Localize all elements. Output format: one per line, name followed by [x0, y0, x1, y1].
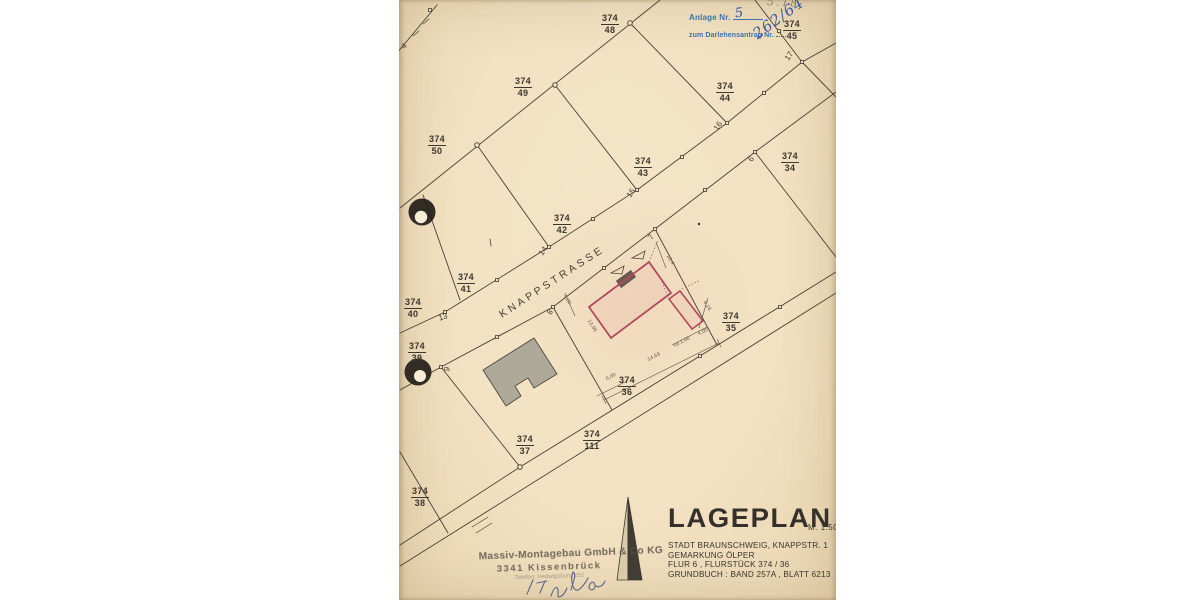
parcel-number: 374 [553, 214, 571, 225]
title-line-grundbuch: GRUNDBUCH : BAND 257A , BLATT 6213 [668, 570, 836, 580]
parcel-subnumber: 37 [516, 446, 534, 456]
parcel-number: 374 [428, 135, 446, 146]
parcel-subnumber: 43 [634, 168, 652, 178]
parcel-label-374-37: 37437 [516, 435, 534, 456]
parcel-number: 374 [516, 435, 534, 446]
anlage-label: Anlage Nr. [689, 13, 731, 22]
parcel-label-374-111: 374111 [583, 430, 601, 451]
parcel-number: 374 [716, 82, 734, 93]
parcel-subnumber: 41 [457, 284, 475, 294]
title-line-flur: FLUR 6 , FLURSTÜCK 374 / 36 [668, 560, 836, 570]
parcel-subnumber: 44 [716, 93, 734, 103]
parcel-number: 374 [514, 77, 532, 88]
stamp-rule [776, 29, 788, 37]
scanned-site-plan-page: KNAPPSTRASSE 374483744537449374443745037… [0, 0, 1200, 600]
parcel-label-374-36: 37436 [618, 376, 636, 397]
parcel-number: 374 [583, 430, 601, 441]
parcel-number: 374 [634, 157, 652, 168]
parcel-subnumber: 36 [618, 387, 636, 397]
parcel-subnumber: 42 [553, 225, 571, 235]
parcel-number: 374 [457, 273, 475, 284]
parcel-label-374-50: 37450 [428, 135, 446, 156]
parcel-label-374-34: 37434 [781, 152, 799, 173]
company-stamp: Massiv-Montagebau GmbH & Co KG 3341 Kiss… [479, 547, 620, 583]
title-line-gemarkung: GEMARKUNG ÖLPER [668, 551, 836, 561]
parcel-label-374-42: 37442 [553, 214, 571, 235]
parcel-label-374-41: 37441 [457, 273, 475, 294]
parcel-subnumber: 111 [583, 441, 601, 451]
parcel-label-374-38: 37438 [411, 487, 429, 508]
site-plan-scan: KNAPPSTRASSE 374483744537449374443745037… [399, 0, 836, 600]
pencil-note: 5.18 [767, 0, 800, 10]
parcel-label-374-48: 37448 [601, 14, 619, 35]
parcel-label-374-39: 37439 [408, 342, 426, 363]
parcel-subnumber: 50 [428, 146, 446, 156]
parcel-number: 374 [408, 342, 426, 353]
parcel-subnumber: 48 [601, 25, 619, 35]
parcel-label-374-49: 37449 [514, 77, 532, 98]
parcel-number: 374 [404, 298, 422, 309]
parcel-label-374-40: 37440 [404, 298, 422, 319]
parcel-label-374-44: 37444 [716, 82, 734, 103]
title-line-city: STADT BRAUNSCHWEIG, KNAPPSTR. 1 [668, 541, 836, 551]
parcel-subnumber: 40 [404, 309, 422, 319]
parcel-label-374-43: 37443 [634, 157, 652, 178]
parcel-number: 374 [722, 312, 740, 323]
parcel-subnumber: 49 [514, 88, 532, 98]
anlage-stamp: Anlage Nr. zum Darlehensantrag Nr. 5 262… [689, 11, 829, 39]
parcel-subnumber: 39 [408, 353, 426, 363]
title-block: LAGEPLAN M. 1:500 STADT BRAUNSCHWEIG, KN… [668, 503, 836, 579]
parcel-subnumber: 35 [722, 323, 740, 333]
existing-building [483, 338, 557, 406]
parcel-label-374-35: 37435 [722, 312, 740, 333]
parcel-subnumber: 34 [781, 163, 799, 173]
parcel-number: 374 [601, 14, 619, 25]
parcel-subnumber: 38 [411, 498, 429, 508]
parcel-number: 374 [781, 152, 799, 163]
new-building-outline [589, 262, 703, 338]
survey-circle-markers [475, 21, 633, 470]
north-arrow [617, 497, 642, 580]
parcel-number: 374 [411, 487, 429, 498]
plan-scale: M. 1:500 [808, 523, 836, 532]
parcel-number: 374 [618, 376, 636, 387]
